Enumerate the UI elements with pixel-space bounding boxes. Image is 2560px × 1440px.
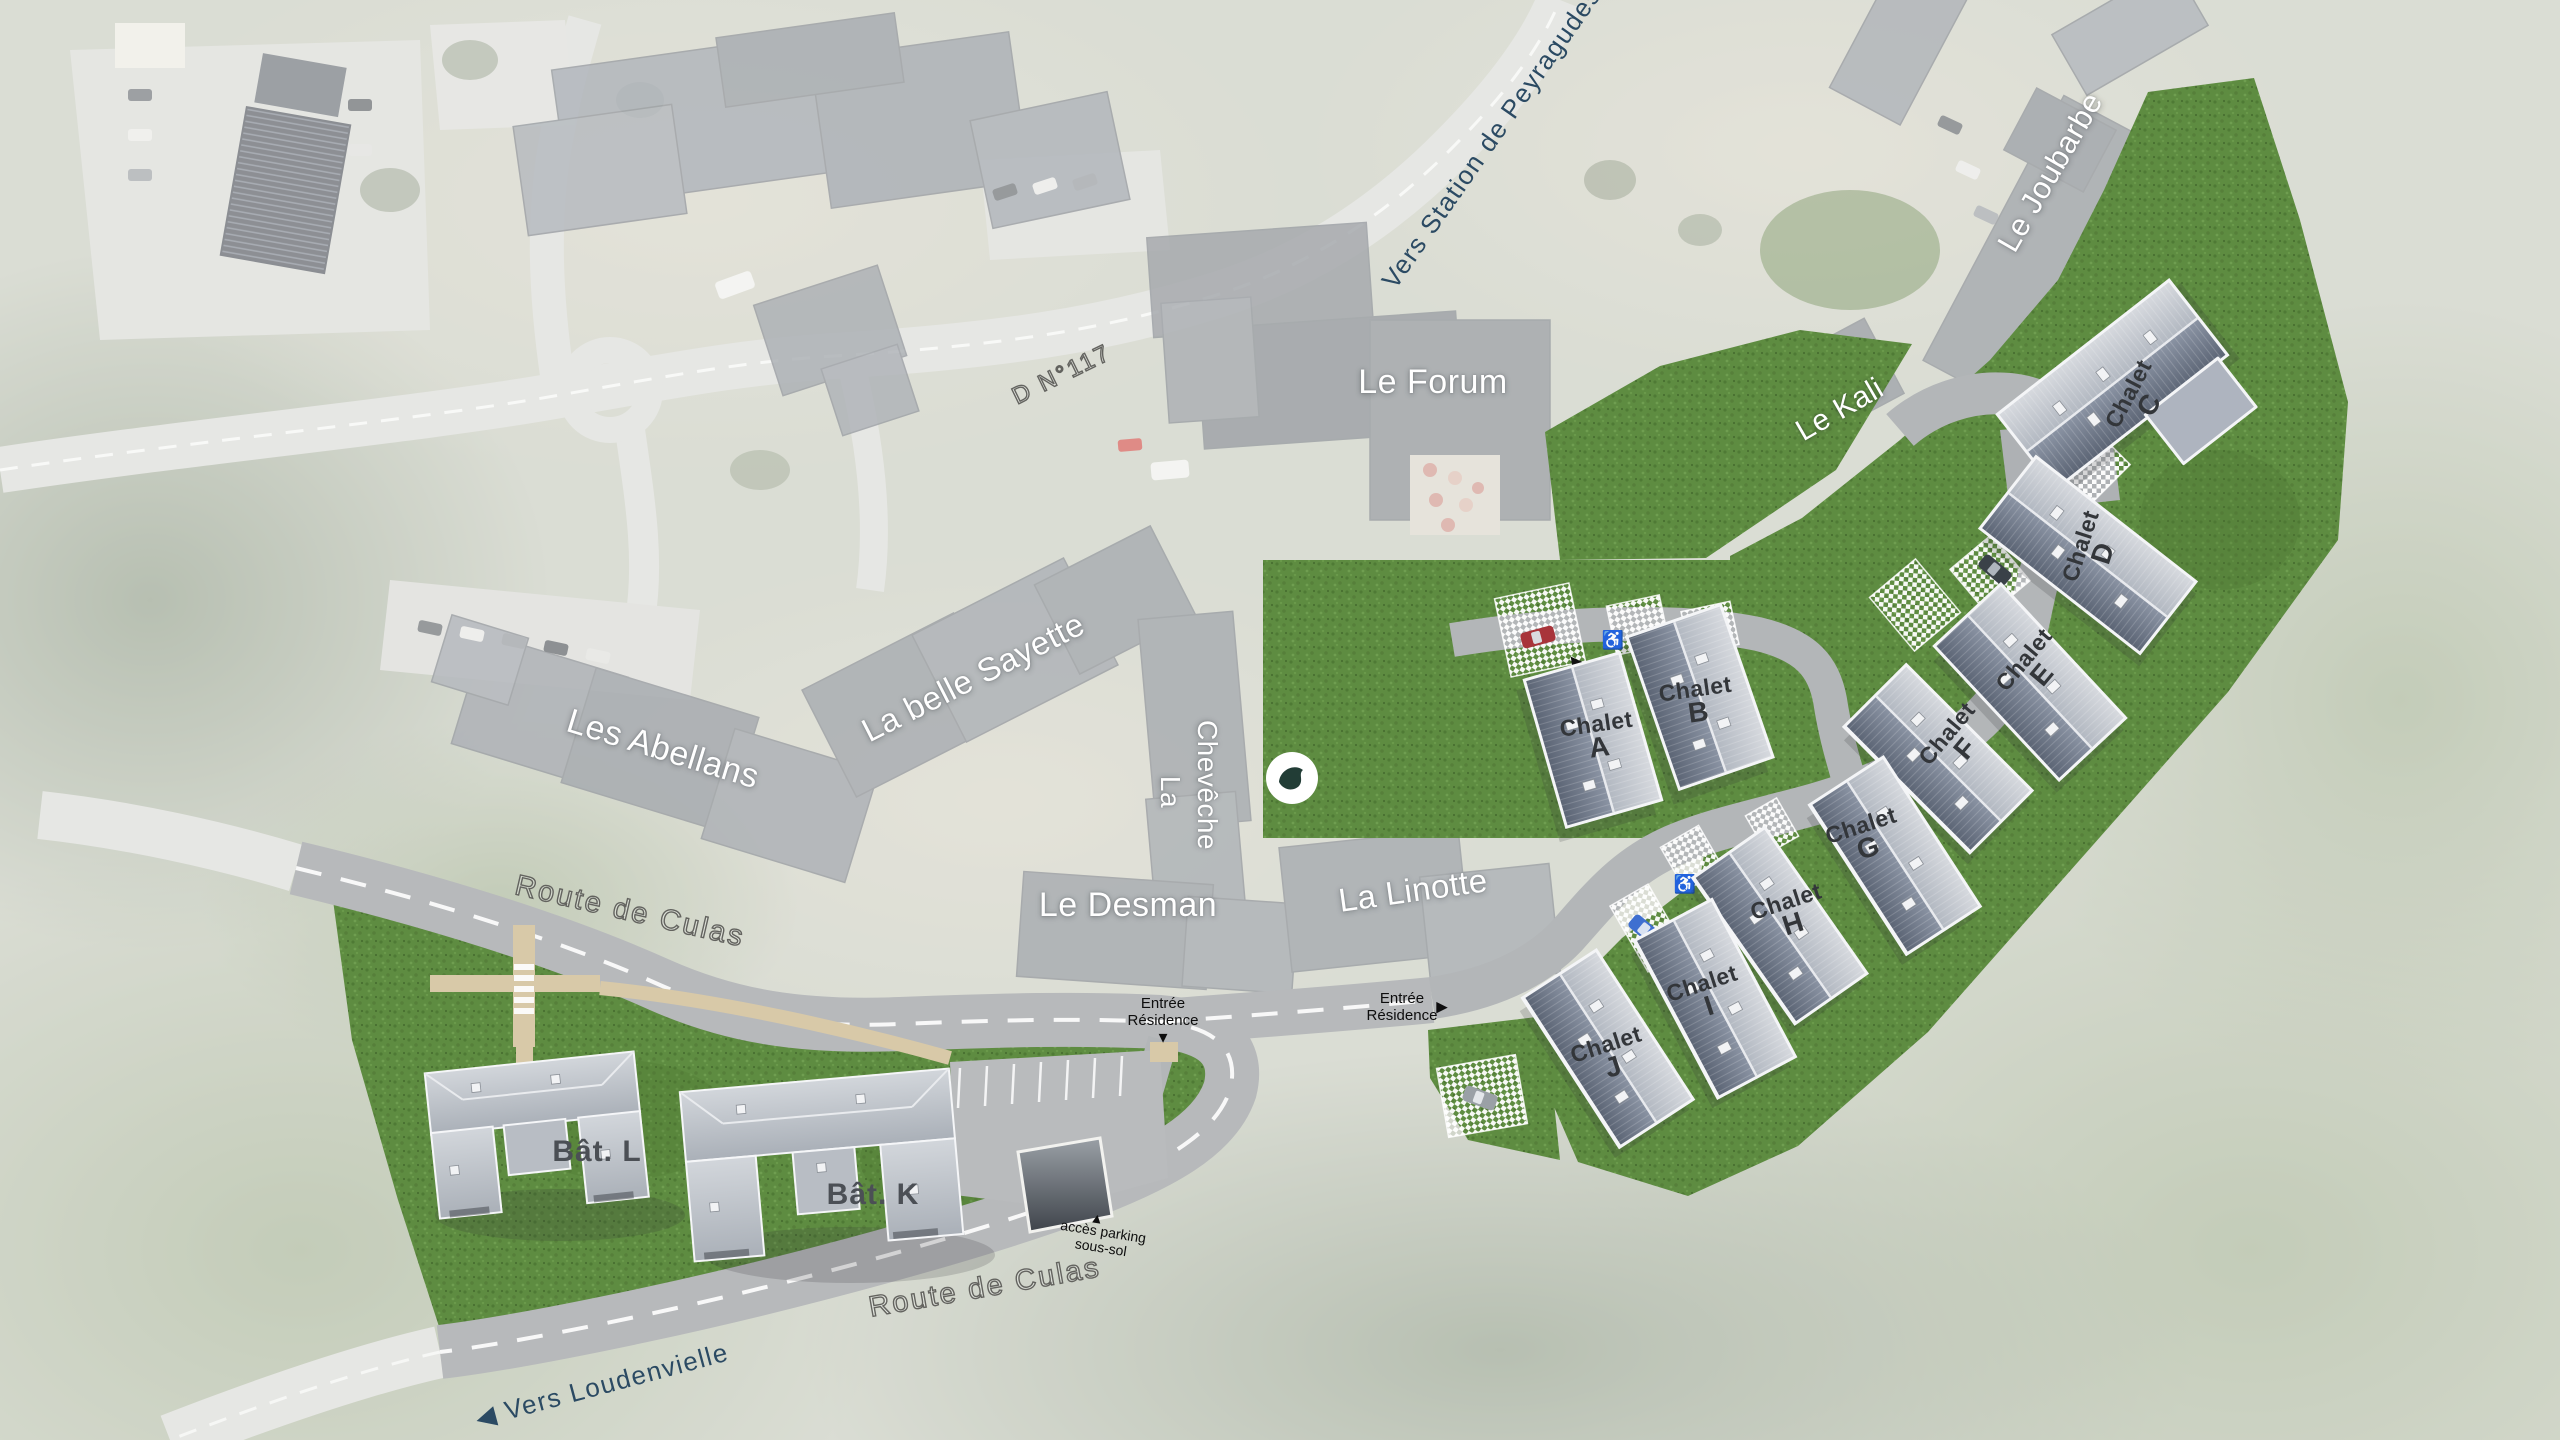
residence-label-forum: Le Forum xyxy=(1358,365,1508,399)
entrance-label-residence-1: EntréeRésidence xyxy=(1128,996,1199,1030)
entrance-label-residence-2: EntréeRésidence xyxy=(1367,991,1438,1025)
entrance2-line2: Résidence xyxy=(1367,1008,1438,1025)
residence-marker-icon xyxy=(1266,752,1318,804)
batiment-label-k[interactable]: Bât. K xyxy=(827,1180,920,1210)
entrance2-arrow-icon: ▶ xyxy=(1436,1000,1448,1015)
entrance2-line1: Entrée xyxy=(1367,991,1438,1008)
entrance1-arrow-icon: ▼ xyxy=(1156,1031,1171,1046)
site-plan-map: ♿ ♿ xyxy=(0,0,2560,1440)
handicap-icon: ♿ xyxy=(1602,629,1624,650)
residence-label-cheveche-la: La xyxy=(1156,776,1184,808)
entrance1-line2: Résidence xyxy=(1128,1013,1199,1030)
parking-access-arrow-icon: ▲ xyxy=(1089,1210,1105,1226)
entrance1-line1: Entrée xyxy=(1128,996,1199,1013)
residence-label-desman: Le Desman xyxy=(1039,888,1217,922)
aerial-map-canvas: ♿ ♿ xyxy=(0,0,2560,1440)
residence-label-cheveche: Chevêche xyxy=(1193,720,1221,850)
batiment-label-l[interactable]: Bât. L xyxy=(552,1137,641,1167)
